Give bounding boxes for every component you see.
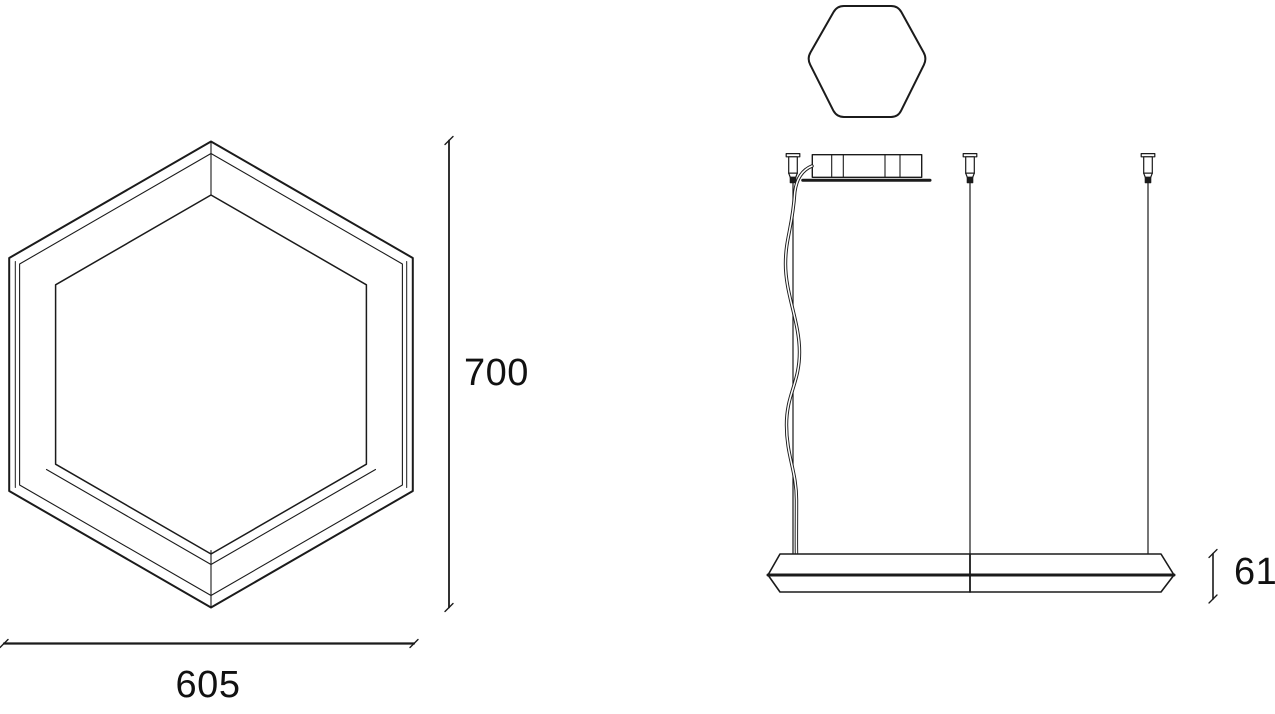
ceiling-rail xyxy=(803,155,930,181)
profile-outline xyxy=(768,554,1174,592)
power-cord xyxy=(786,166,813,554)
width-dimension-label: 605 xyxy=(156,664,260,708)
rail-body xyxy=(812,155,921,178)
hexagon-outer-edge xyxy=(9,142,413,608)
canopy-top-view xyxy=(809,6,926,117)
cable-gland-right xyxy=(1141,154,1155,183)
thickness-dimension-line xyxy=(1209,550,1217,604)
hexagon-front-view xyxy=(9,142,413,608)
height-dimension-label: 700 xyxy=(464,352,529,396)
technical-linework xyxy=(0,0,1275,714)
thickness-dimension-label: 61 xyxy=(1234,551,1275,595)
cable-gland-center xyxy=(963,154,977,183)
height-dimension-line xyxy=(445,137,453,612)
width-dimension-line xyxy=(0,640,418,648)
drawing-canvas: 700 605 61 xyxy=(0,0,1275,714)
hexagon-inner-edge xyxy=(56,195,367,554)
suspension-wires xyxy=(793,183,1148,554)
luminaire-side-profile xyxy=(768,554,1174,592)
